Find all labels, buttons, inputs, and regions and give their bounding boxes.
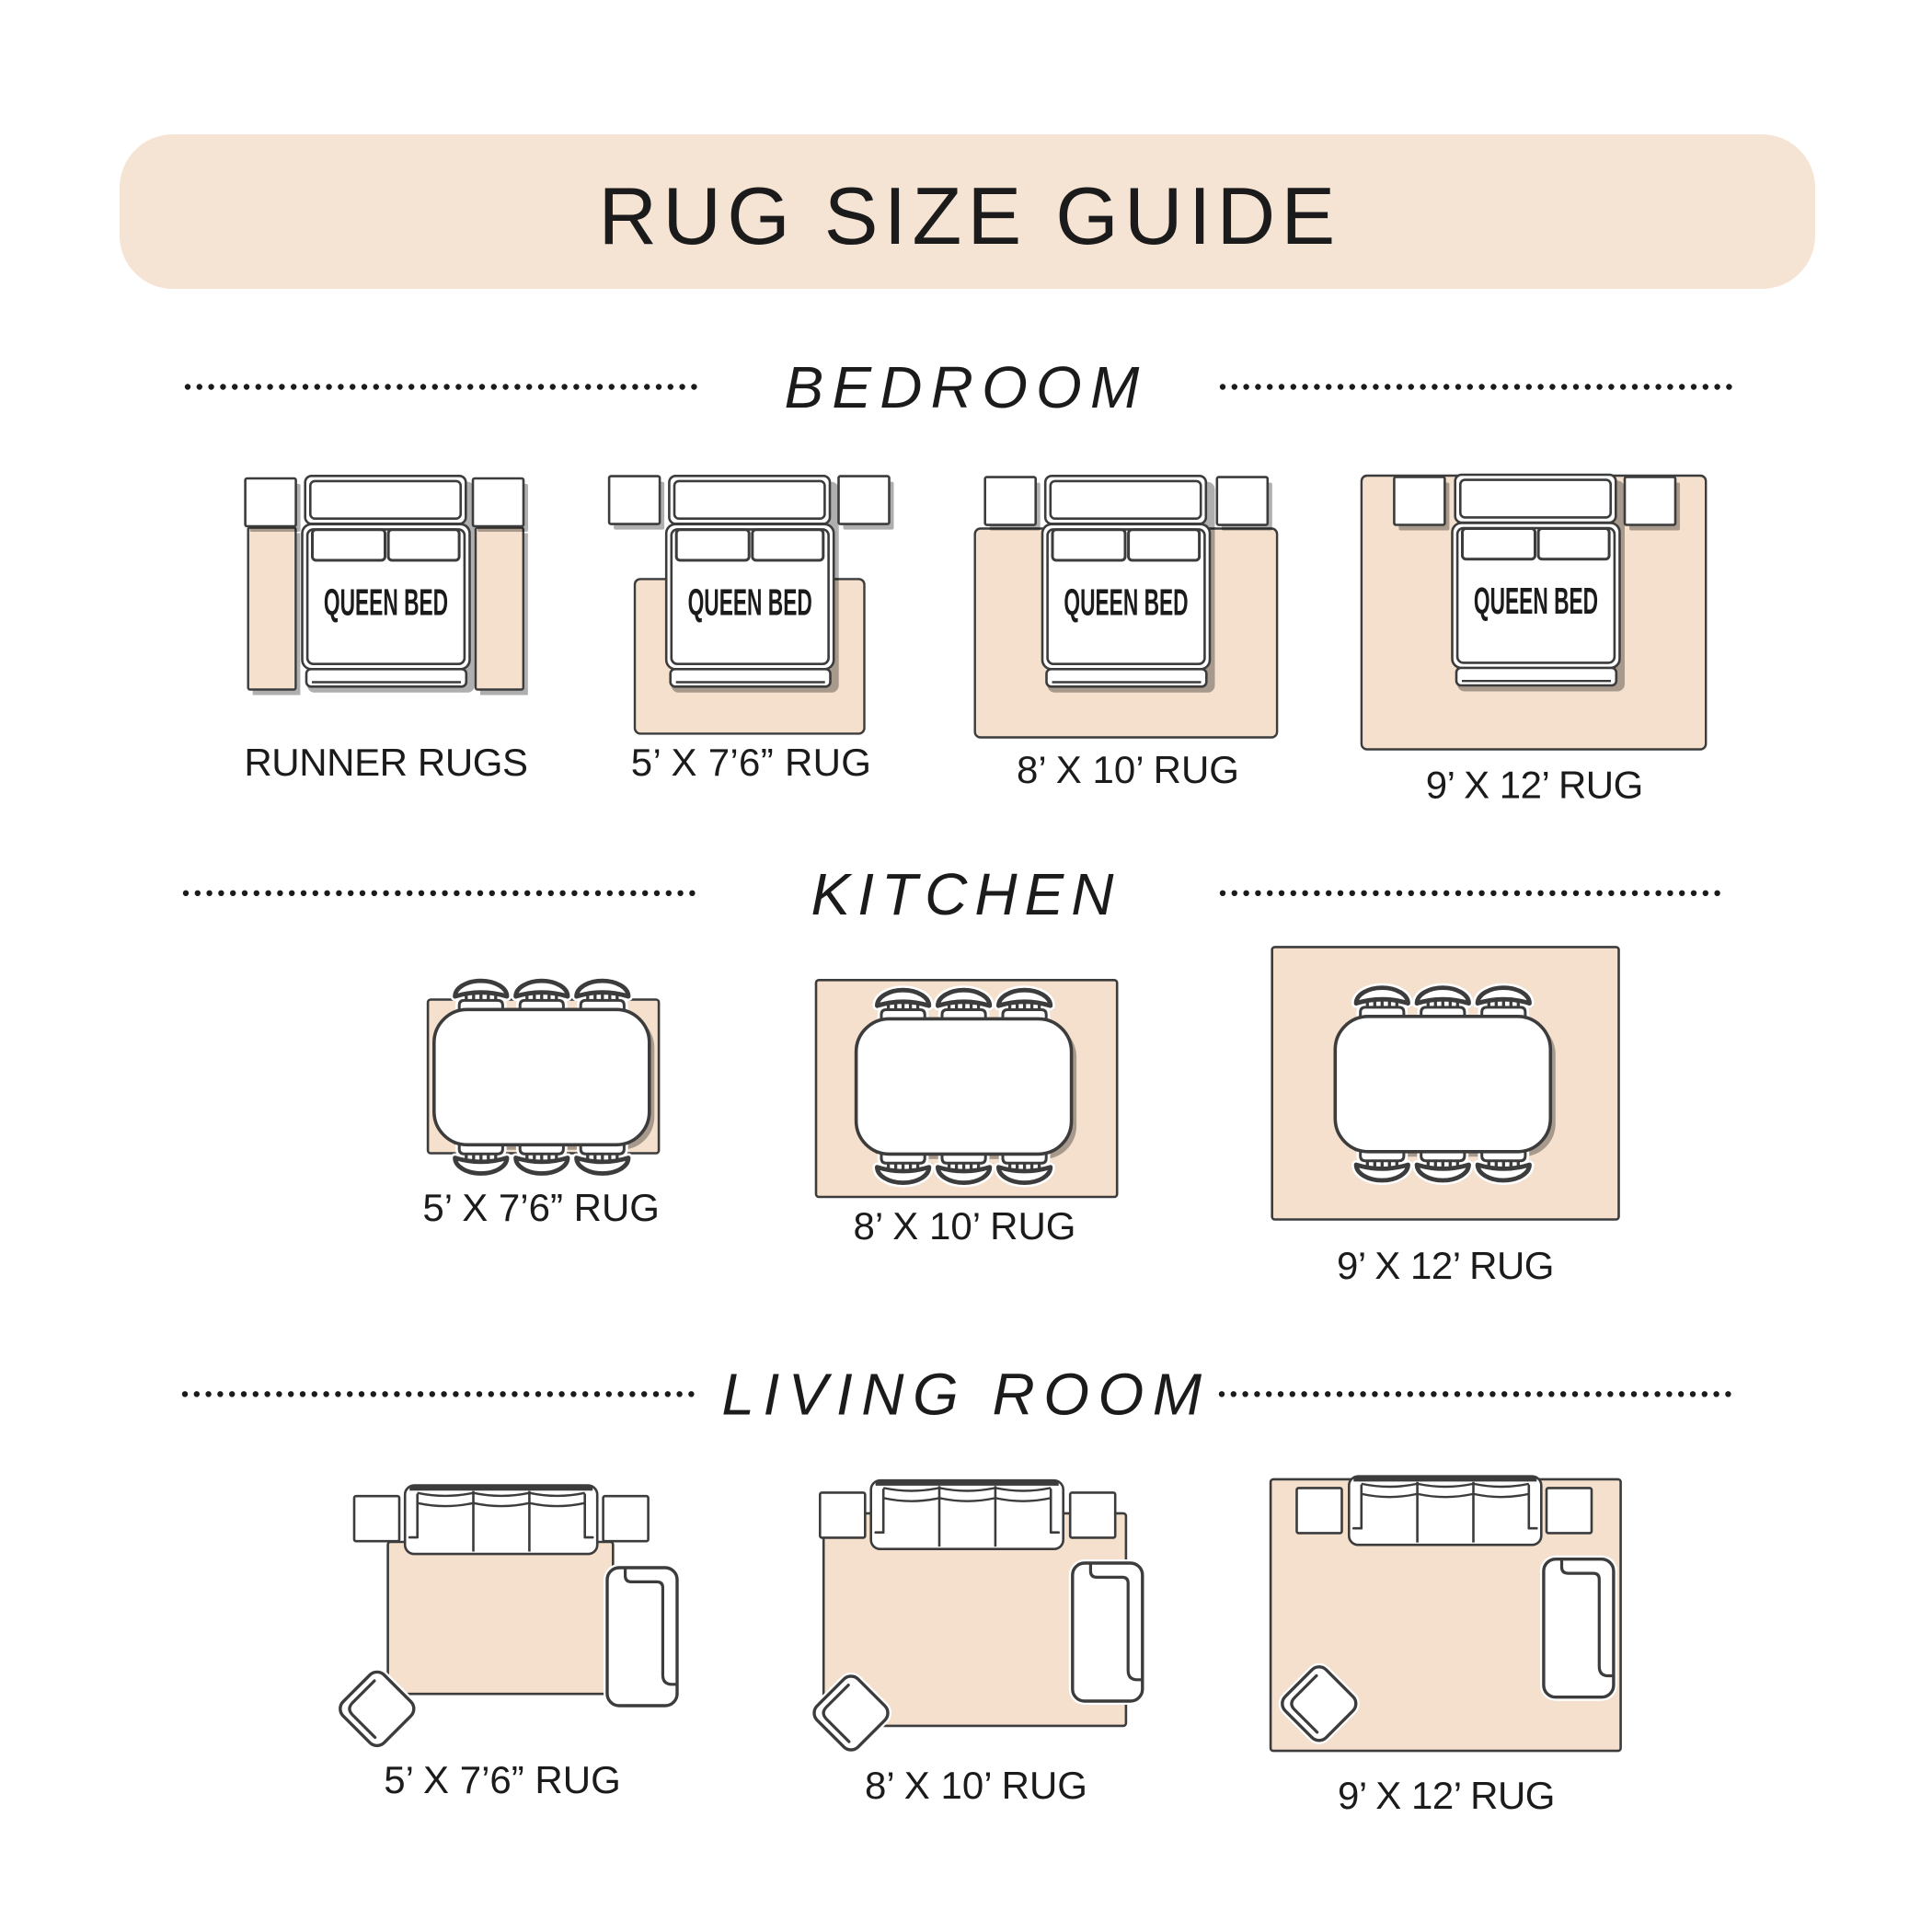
- svg-text:9’ X 12’ RUG: 9’ X 12’ RUG: [1337, 1244, 1554, 1287]
- svg-text:5’ X 7’6” RUG: 5’ X 7’6” RUG: [384, 1758, 621, 1801]
- svg-text:9’ X 12’ RUG: 9’ X 12’ RUG: [1338, 1774, 1555, 1817]
- svg-text:8’ X 10’ RUG: 8’ X 10’ RUG: [1017, 748, 1239, 791]
- svg-text:5’ X 7’6” RUG: 5’ X 7’6” RUG: [422, 1186, 660, 1229]
- svg-text:8’ X 10’ RUG: 8’ X 10’ RUG: [854, 1204, 1076, 1248]
- svg-text:RUG SIZE GUIDE: RUG SIZE GUIDE: [599, 170, 1341, 261]
- svg-text:LIVING ROOM: LIVING ROOM: [721, 1362, 1210, 1428]
- svg-text:5’ X 7’6” RUG: 5’ X 7’6” RUG: [631, 741, 871, 784]
- svg-text:KITCHEN: KITCHEN: [811, 861, 1121, 927]
- svg-text:RUNNER RUGS: RUNNER RUGS: [244, 741, 527, 784]
- svg-text:9’ X 12’ RUG: 9’ X 12’ RUG: [1426, 764, 1643, 807]
- svg-text:8’ X 10’ RUG: 8’ X 10’ RUG: [865, 1764, 1087, 1807]
- svg-text:BEDROOM: BEDROOM: [784, 354, 1147, 420]
